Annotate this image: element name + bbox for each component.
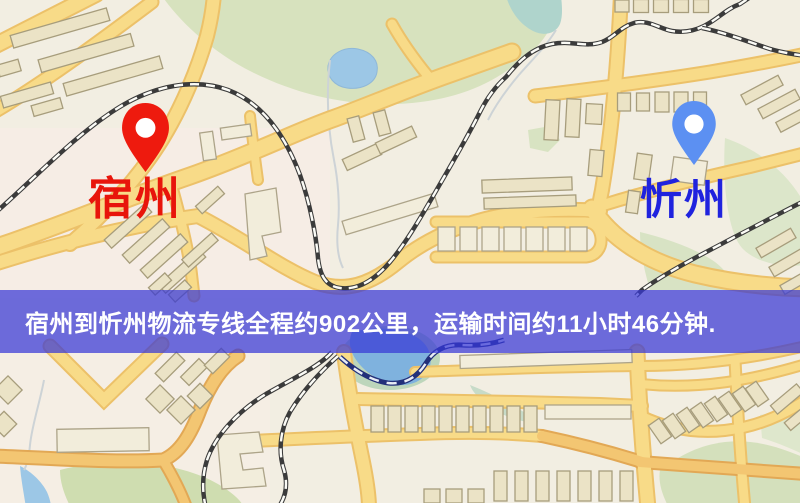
destination-label: 忻州 [640, 179, 728, 221]
map-image: 宿州 忻州 宿州到忻州物流专线全程约902公里，运输时间约11小时46分钟. [0, 0, 800, 503]
banner-text: 宿州到忻州物流专线全程约902公里，运输时间约11小时46分钟. [25, 304, 716, 339]
origin-pin-icon[interactable] [122, 103, 169, 172]
info-banner: 宿州到忻州物流专线全程约902公里，运输时间约11小时46分钟. [0, 290, 800, 353]
destination-pin-icon[interactable] [672, 101, 716, 165]
map-canvas [0, 0, 800, 503]
origin-label: 宿州 [88, 176, 182, 221]
